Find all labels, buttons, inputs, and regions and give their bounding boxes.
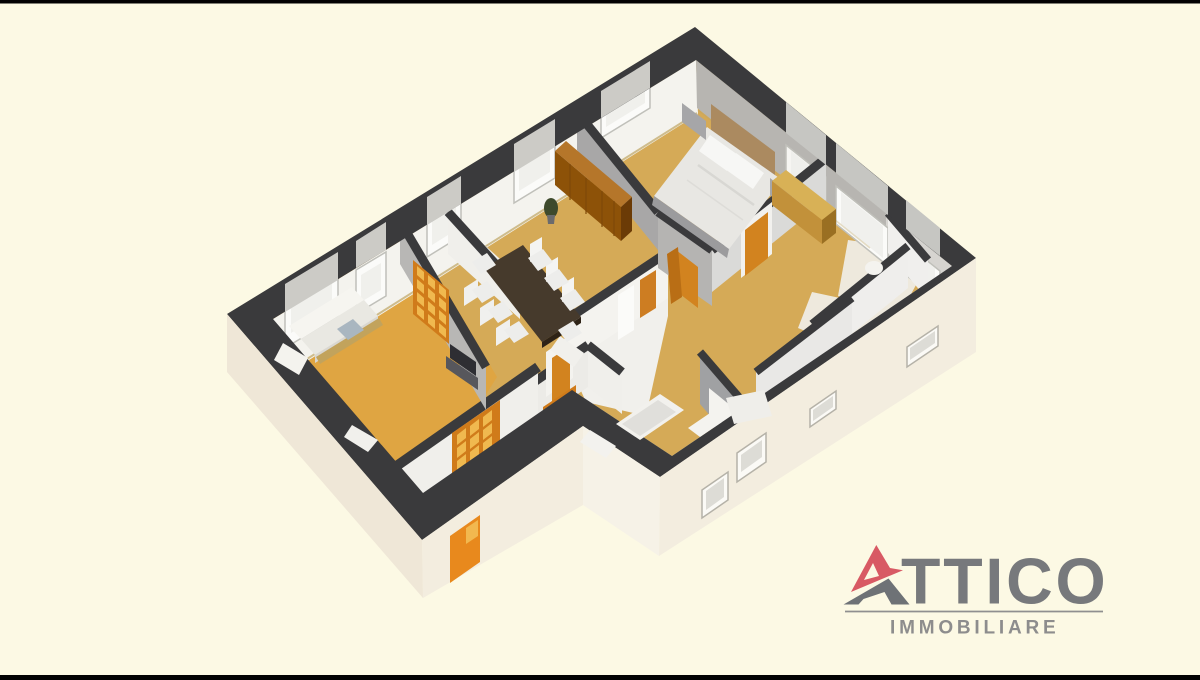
svg-text:TTICO: TTICO [901, 546, 1108, 618]
svg-text:IMMOBILIARE: IMMOBILIARE [890, 618, 1060, 639]
